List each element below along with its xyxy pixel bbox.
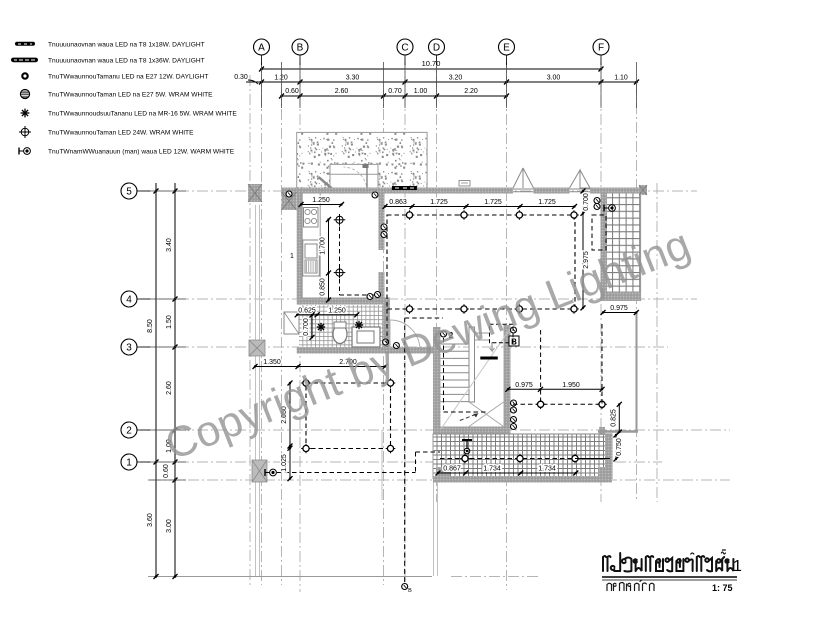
svg-text:0.700: 0.700	[303, 318, 310, 336]
svg-text:0.30: 0.30	[234, 74, 248, 81]
svg-text:1.950: 1.950	[562, 382, 580, 389]
svg-text:0.850: 0.850	[320, 278, 327, 296]
svg-text:Tnuuuunaovnan waua LED na T8 1: Tnuuuunaovnan waua LED na T8 1x36W. DAYL…	[48, 57, 205, 64]
svg-text:3.60: 3.60	[147, 513, 154, 527]
svg-text:D: D	[433, 43, 440, 54]
svg-text:1.250: 1.250	[328, 307, 346, 314]
svg-text:1.725: 1.725	[430, 199, 448, 206]
svg-text:1.00: 1.00	[414, 88, 428, 95]
svg-text:10.70: 10.70	[422, 59, 441, 68]
svg-text:1.250: 1.250	[312, 197, 330, 204]
svg-text:A: A	[258, 43, 265, 54]
svg-text:0.975: 0.975	[610, 305, 628, 312]
svg-text:B: B	[408, 588, 412, 594]
svg-text:2: 2	[126, 426, 132, 437]
svg-text:1.350: 1.350	[263, 359, 281, 366]
svg-text:1.10: 1.10	[614, 75, 628, 82]
svg-text:0.60: 0.60	[163, 464, 170, 478]
svg-text:4: 4	[126, 295, 132, 306]
svg-text:5: 5	[126, 187, 132, 198]
svg-text:TnuTWwaunnouTaman LED na E27 5: TnuTWwaunnouTaman LED na E27 5W. WRAM WH…	[48, 91, 213, 98]
svg-text:Tnuuuunaovnan waua LED na T8 1: Tnuuuunaovnan waua LED na T8 1x18W. DAYL…	[48, 41, 205, 48]
svg-text:1.50: 1.50	[166, 315, 173, 329]
svg-text:3: 3	[126, 343, 132, 354]
svg-text:1: 1	[733, 558, 742, 575]
svg-text:TnuTWwaunnoudsuuTananu LED na: TnuTWwaunnoudsuuTananu LED na MR-16 5W. …	[48, 110, 237, 117]
svg-text:0.70: 0.70	[388, 88, 402, 95]
svg-text:0.750: 0.750	[616, 438, 623, 456]
svg-text:C: C	[401, 43, 408, 54]
svg-text:B: B	[297, 43, 304, 54]
svg-text:8.50: 8.50	[147, 319, 154, 333]
svg-text:1.20: 1.20	[274, 75, 288, 82]
svg-text:2.60: 2.60	[166, 381, 173, 395]
svg-text:0.867: 0.867	[443, 466, 461, 473]
svg-text:0.825: 0.825	[610, 409, 617, 427]
svg-text:F: F	[598, 43, 604, 54]
svg-text:B: B	[511, 338, 517, 347]
svg-text:1.025: 1.025	[281, 454, 288, 472]
svg-text:1.700: 1.700	[320, 237, 327, 255]
svg-text:1.734: 1.734	[483, 466, 501, 473]
svg-text:0.700: 0.700	[583, 193, 590, 211]
svg-text:2.60: 2.60	[335, 88, 349, 95]
svg-text:0.975: 0.975	[515, 382, 533, 389]
svg-text:0.863: 0.863	[389, 199, 407, 206]
svg-text:1: 1	[126, 458, 132, 469]
svg-text:3.20: 3.20	[449, 75, 463, 82]
svg-text:1.725: 1.725	[484, 199, 502, 206]
svg-text:E: E	[503, 43, 510, 54]
svg-text:TnuTWwaunnouTamanu LED na E27: TnuTWwaunnouTamanu LED na E27 12W. DAYLI…	[48, 73, 208, 80]
svg-text:3.40: 3.40	[166, 238, 173, 252]
svg-text:1: 75: 1: 75	[712, 583, 733, 593]
svg-text:TnuTWnamWWuanauun (man) waua L: TnuTWnamWWuanauun (man) waua LED 12W. WA…	[48, 148, 235, 155]
svg-text:0.60: 0.60	[285, 88, 299, 95]
svg-text:1.734: 1.734	[538, 466, 556, 473]
svg-text:1: 1	[290, 253, 294, 260]
svg-text:1.725: 1.725	[538, 199, 556, 206]
svg-text:3.00: 3.00	[166, 519, 173, 533]
svg-text:2.20: 2.20	[464, 88, 478, 95]
svg-text:3.00: 3.00	[547, 75, 561, 82]
svg-text:TnuTWwaunnouTaman LED 24W. WR: TnuTWwaunnouTaman LED 24W. WRAM WHITE	[48, 129, 194, 136]
svg-text:3.30: 3.30	[346, 75, 360, 82]
